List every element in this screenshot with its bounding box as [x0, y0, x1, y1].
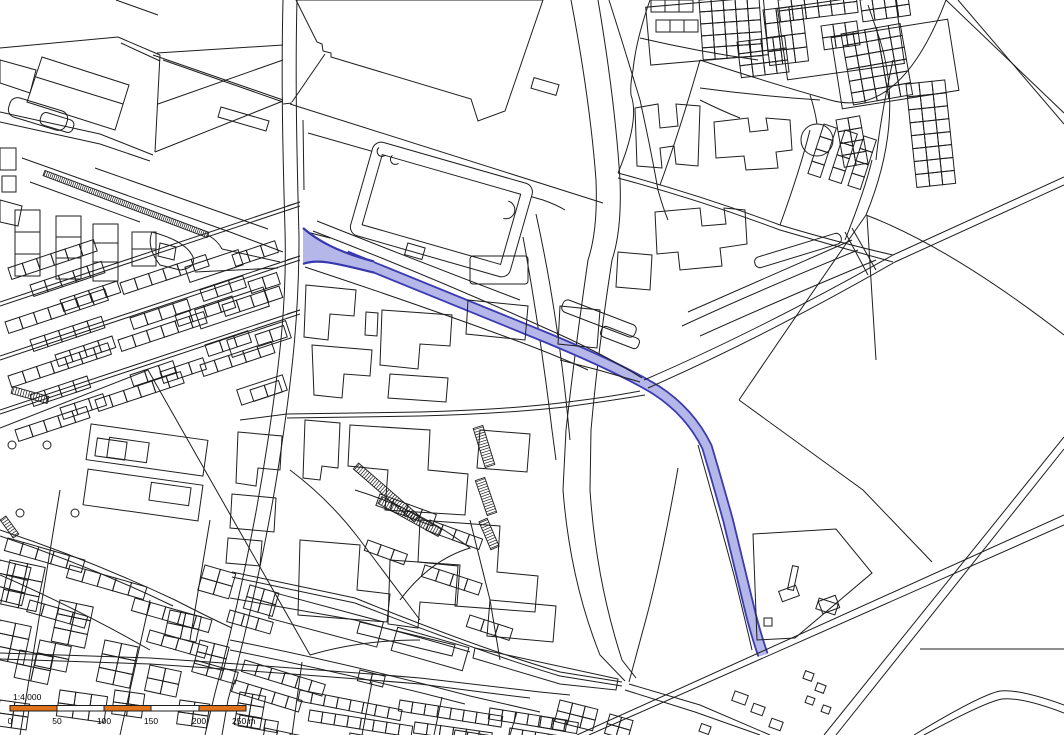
- svg-text:0: 0: [8, 716, 13, 726]
- svg-text:1:4,000: 1:4,000: [13, 692, 42, 702]
- svg-text:150: 150: [144, 716, 158, 726]
- svg-text:200: 200: [192, 716, 206, 726]
- svg-text:50: 50: [52, 716, 62, 726]
- svg-text:100: 100: [97, 716, 111, 726]
- svg-text:250 m: 250 m: [232, 716, 256, 726]
